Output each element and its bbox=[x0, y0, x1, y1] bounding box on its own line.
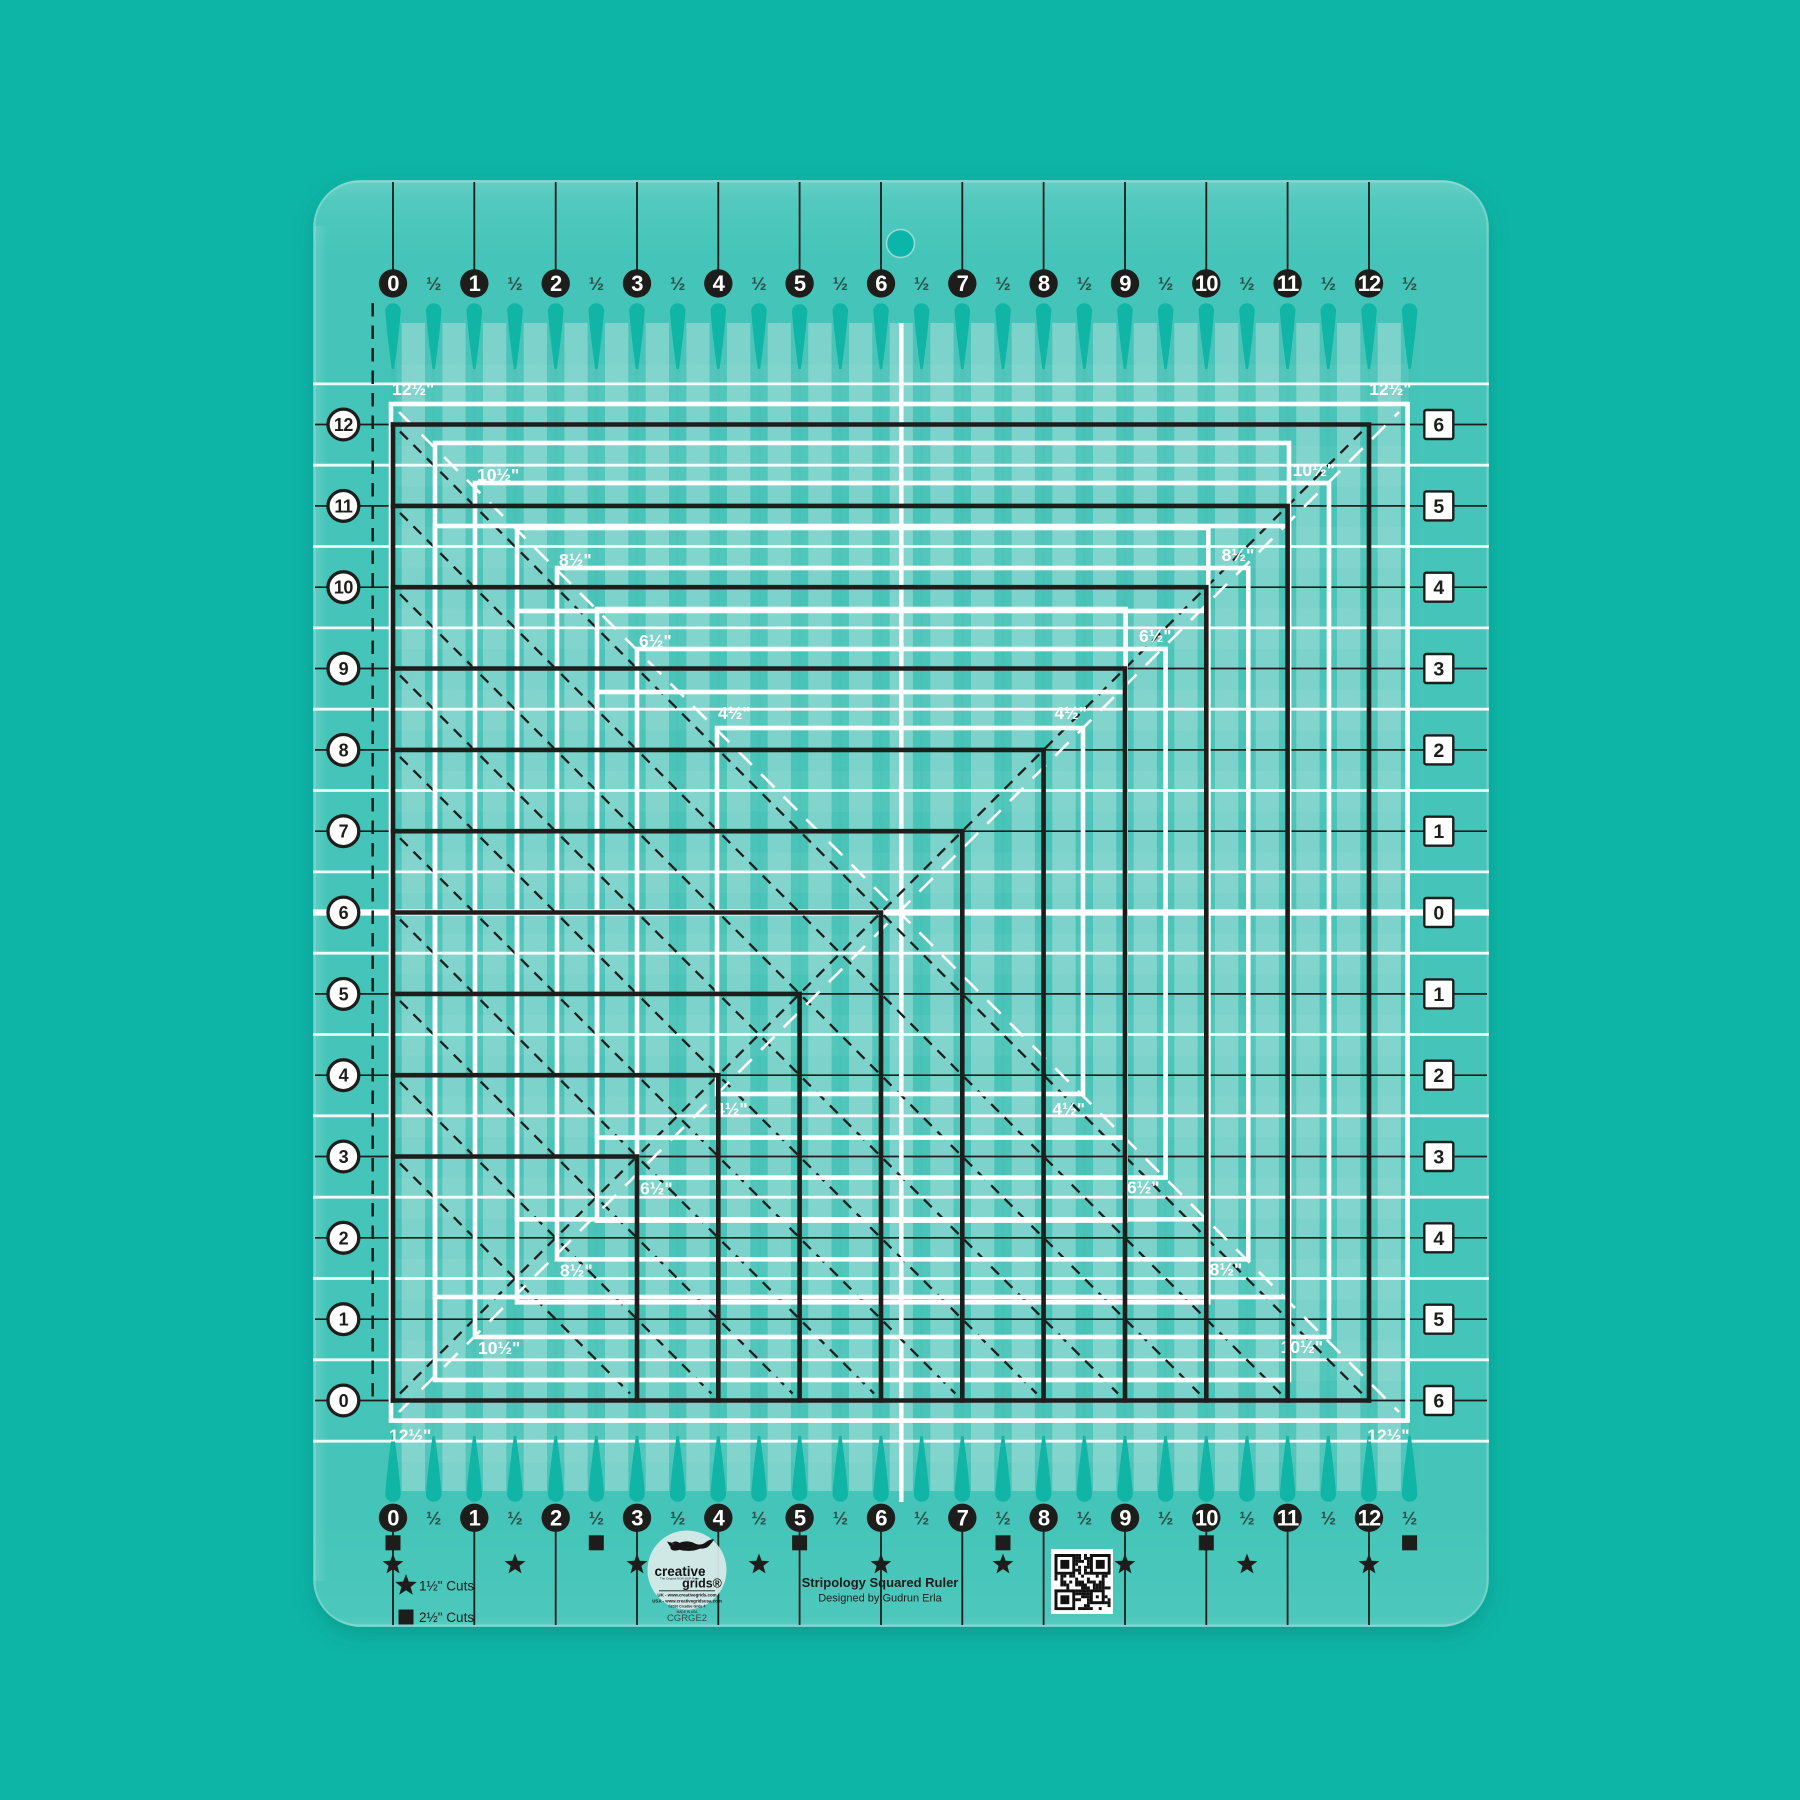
svg-text:8: 8 bbox=[1038, 271, 1050, 296]
svg-text:½: ½ bbox=[1321, 273, 1336, 294]
svg-text:Stripology Squared Ruler: Stripology Squared Ruler bbox=[802, 1575, 959, 1590]
svg-text:USA - www.creativegridsusa.com: USA - www.creativegridsusa.com bbox=[652, 1599, 722, 1604]
svg-text:12½": 12½" bbox=[1369, 379, 1411, 399]
svg-text:0: 0 bbox=[387, 271, 399, 296]
svg-text:12½": 12½" bbox=[392, 379, 434, 399]
svg-text:11: 11 bbox=[1277, 1505, 1299, 1530]
svg-text:12½": 12½" bbox=[1367, 1426, 1409, 1446]
svg-text:6: 6 bbox=[875, 1505, 887, 1530]
svg-text:2½" Cuts: 2½" Cuts bbox=[419, 1610, 474, 1625]
svg-text:6: 6 bbox=[875, 271, 887, 296]
svg-text:6: 6 bbox=[339, 903, 349, 923]
svg-text:½: ½ bbox=[1239, 273, 1254, 294]
svg-text:½: ½ bbox=[995, 273, 1010, 294]
svg-text:6½": 6½" bbox=[1127, 1178, 1160, 1198]
svg-text:½: ½ bbox=[670, 1507, 685, 1528]
svg-text:½: ½ bbox=[1158, 1507, 1173, 1528]
svg-text:½: ½ bbox=[670, 273, 685, 294]
svg-text:6½": 6½" bbox=[639, 631, 672, 651]
svg-text:7: 7 bbox=[957, 271, 969, 296]
svg-text:12: 12 bbox=[1358, 1505, 1381, 1530]
svg-text:7: 7 bbox=[339, 822, 349, 842]
svg-text:8½": 8½" bbox=[560, 1260, 593, 1280]
svg-text:½: ½ bbox=[995, 1507, 1010, 1528]
svg-text:CGRGE2: CGRGE2 bbox=[667, 1613, 707, 1624]
svg-text:©2010 Creative Grids ®: ©2010 Creative Grids ® bbox=[668, 1605, 706, 1609]
svg-text:5: 5 bbox=[1433, 496, 1444, 518]
svg-text:2: 2 bbox=[339, 1228, 349, 1248]
svg-text:0: 0 bbox=[339, 1391, 349, 1411]
svg-text:1: 1 bbox=[469, 1505, 481, 1530]
svg-text:Designed by Gudrun Erla: Designed by Gudrun Erla bbox=[818, 1593, 942, 1605]
svg-text:2: 2 bbox=[1433, 740, 1444, 762]
svg-text:9: 9 bbox=[1119, 1505, 1131, 1530]
svg-text:3: 3 bbox=[631, 271, 643, 296]
svg-text:4: 4 bbox=[713, 1505, 726, 1530]
svg-text:½: ½ bbox=[1321, 1507, 1336, 1528]
svg-text:8: 8 bbox=[339, 740, 349, 760]
svg-text:8½": 8½" bbox=[1222, 545, 1255, 565]
svg-text:5: 5 bbox=[794, 1505, 806, 1530]
svg-text:½: ½ bbox=[426, 1507, 441, 1528]
svg-text:½: ½ bbox=[426, 273, 441, 294]
svg-text:½: ½ bbox=[751, 273, 766, 294]
svg-text:4½": 4½" bbox=[1052, 1099, 1085, 1119]
svg-text:8½": 8½" bbox=[1210, 1259, 1243, 1279]
svg-text:12: 12 bbox=[334, 415, 354, 435]
svg-text:½: ½ bbox=[751, 1507, 766, 1528]
svg-text:10: 10 bbox=[1195, 271, 1218, 296]
svg-text:10: 10 bbox=[1195, 1505, 1218, 1530]
svg-text:½: ½ bbox=[1402, 273, 1417, 294]
svg-text:9: 9 bbox=[1119, 271, 1131, 296]
svg-text:4: 4 bbox=[1433, 1228, 1444, 1250]
svg-text:1: 1 bbox=[339, 1310, 349, 1330]
svg-text:½: ½ bbox=[1402, 1507, 1417, 1528]
svg-text:4: 4 bbox=[713, 271, 726, 296]
svg-text:0: 0 bbox=[1433, 903, 1444, 925]
svg-text:grids®: grids® bbox=[682, 1577, 723, 1591]
svg-text:4: 4 bbox=[1433, 577, 1444, 599]
svg-text:10½": 10½" bbox=[1293, 460, 1335, 480]
svg-text:10½": 10½" bbox=[477, 465, 519, 485]
svg-text:½: ½ bbox=[1239, 1507, 1254, 1528]
svg-text:3: 3 bbox=[1433, 1147, 1444, 1169]
svg-text:½: ½ bbox=[914, 273, 929, 294]
svg-text:½: ½ bbox=[507, 273, 522, 294]
svg-text:½: ½ bbox=[507, 1507, 522, 1528]
svg-text:2: 2 bbox=[550, 271, 562, 296]
svg-text:12: 12 bbox=[1358, 271, 1381, 296]
svg-text:6: 6 bbox=[1433, 1391, 1444, 1413]
svg-text:2: 2 bbox=[1433, 1065, 1444, 1087]
svg-text:4: 4 bbox=[339, 1066, 349, 1086]
svg-text:6½": 6½" bbox=[1139, 626, 1172, 646]
svg-text:4½": 4½" bbox=[1054, 703, 1087, 723]
svg-text:½: ½ bbox=[589, 273, 604, 294]
svg-text:½: ½ bbox=[1077, 273, 1092, 294]
svg-text:½: ½ bbox=[1158, 273, 1173, 294]
svg-text:3: 3 bbox=[339, 1147, 349, 1167]
svg-text:4½": 4½" bbox=[718, 703, 751, 723]
svg-text:5: 5 bbox=[339, 984, 349, 1004]
svg-text:6½": 6½" bbox=[640, 1179, 673, 1199]
svg-text:1: 1 bbox=[1433, 984, 1444, 1006]
svg-text:12½": 12½" bbox=[389, 1426, 431, 1446]
svg-text:3: 3 bbox=[1433, 659, 1444, 681]
svg-text:8: 8 bbox=[1038, 1505, 1050, 1530]
svg-text:5: 5 bbox=[794, 271, 806, 296]
svg-text:½: ½ bbox=[1077, 1507, 1092, 1528]
svg-text:11: 11 bbox=[1277, 271, 1299, 296]
svg-text:½: ½ bbox=[589, 1507, 604, 1528]
svg-text:2: 2 bbox=[550, 1505, 562, 1530]
svg-text:11: 11 bbox=[334, 496, 353, 516]
svg-text:10½": 10½" bbox=[478, 1338, 520, 1358]
svg-text:8½": 8½" bbox=[559, 550, 592, 570]
svg-text:5: 5 bbox=[1433, 1309, 1444, 1331]
svg-text:6: 6 bbox=[1433, 415, 1444, 437]
svg-text:9: 9 bbox=[339, 659, 349, 679]
svg-text:0: 0 bbox=[387, 1505, 399, 1530]
svg-text:½: ½ bbox=[833, 273, 848, 294]
svg-text:½: ½ bbox=[833, 1507, 848, 1528]
svg-text:UK - www.creativegrids.com: UK - www.creativegrids.com bbox=[657, 1593, 716, 1598]
svg-text:7: 7 bbox=[957, 1505, 969, 1530]
svg-text:1½" Cuts: 1½" Cuts bbox=[419, 1579, 474, 1594]
svg-text:3: 3 bbox=[631, 1505, 643, 1530]
svg-text:1: 1 bbox=[1433, 821, 1444, 843]
svg-text:½: ½ bbox=[914, 1507, 929, 1528]
svg-text:1: 1 bbox=[469, 271, 481, 296]
svg-text:10: 10 bbox=[334, 578, 354, 598]
